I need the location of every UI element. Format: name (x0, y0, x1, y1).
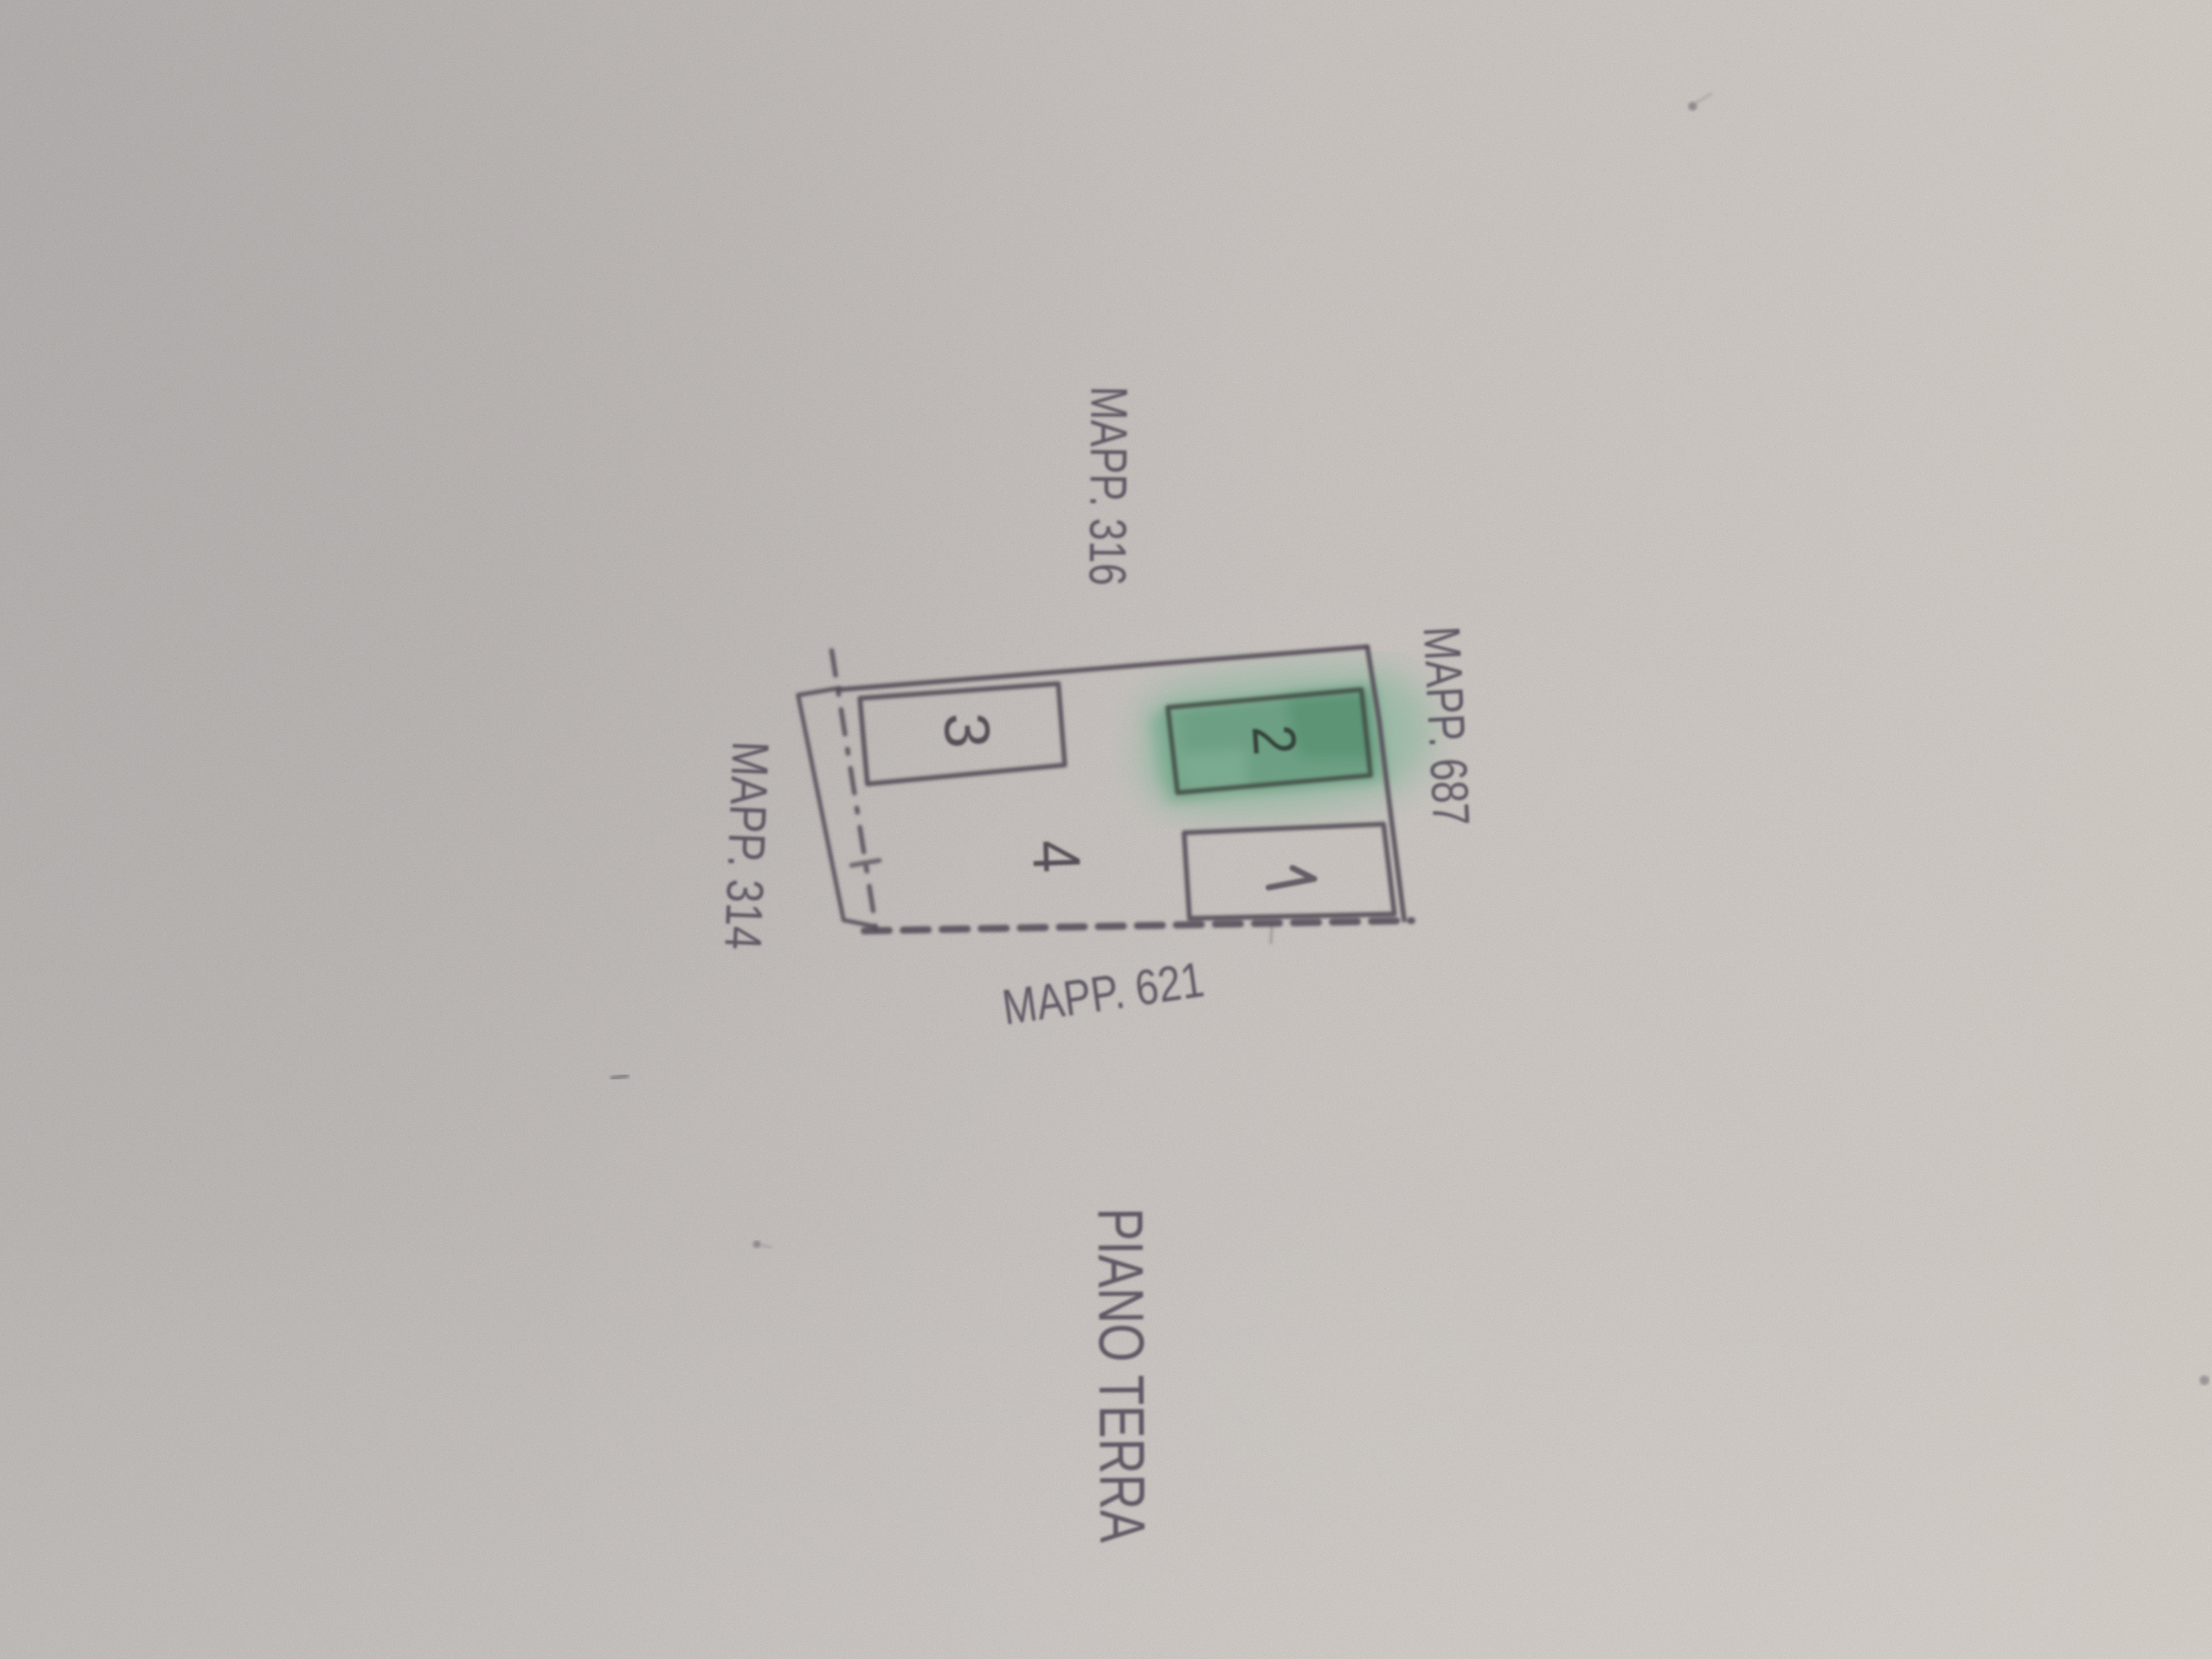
svg-text:MAPP. 687: MAPP. 687 (1412, 625, 1480, 827)
svg-text:MAPP. 314: MAPP. 314 (713, 740, 780, 951)
svg-text:2: 2 (1239, 723, 1309, 757)
svg-text:3: 3 (930, 711, 1003, 749)
svg-text:MAPP. 316: MAPP. 316 (1078, 386, 1138, 586)
svg-text:4: 4 (1018, 839, 1094, 874)
svg-text:PIANO TERRA: PIANO TERRA (1084, 1207, 1158, 1543)
